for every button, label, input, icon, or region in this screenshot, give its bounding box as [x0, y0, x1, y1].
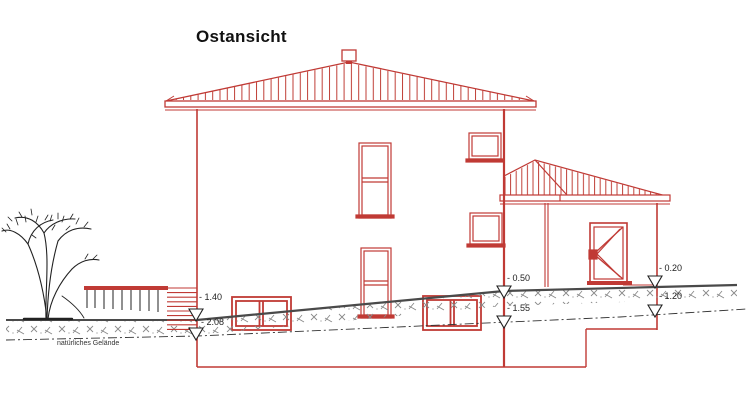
annex-roof-hatching	[505, 161, 665, 196]
window-middle-square	[467, 213, 505, 247]
level-label-annex-right-upper: - 0.20	[659, 263, 682, 273]
window-sill	[466, 159, 504, 162]
level-label-main-right-upper: - 0.50	[507, 273, 530, 283]
annex-door	[587, 223, 632, 285]
chimney	[342, 50, 356, 61]
door-hinge-mark	[589, 250, 597, 259]
door-threshold	[587, 281, 632, 285]
window-sill	[467, 244, 505, 247]
level-label-annex-right-lower: - 1.20	[659, 291, 682, 301]
elevation-sheet: Ostansicht - 1.40 - 2.08 - 0.50 - 1.55 -…	[0, 0, 750, 409]
main-roof-hatching	[170, 63, 530, 100]
level-label-main-left-lower: - 2.08	[201, 317, 224, 327]
tree	[2, 209, 99, 319]
drawing-title: Ostansicht	[196, 27, 287, 47]
terrace-handrail	[84, 286, 168, 290]
window-upper-tall	[356, 143, 394, 218]
terrace-railing-posts	[87, 290, 158, 312]
tree-foliage-ticks	[2, 209, 97, 259]
level-marker-triangle-1.20	[648, 305, 662, 317]
elevation-drawing	[0, 0, 750, 409]
level-label-main-left-upper: - 1.40	[199, 292, 222, 302]
main-roof	[165, 50, 536, 110]
main-roof-fascia	[165, 101, 536, 107]
annex-roof	[500, 160, 670, 204]
level-label-main-right-lower: - 1.55	[507, 303, 530, 313]
annex-roof-fascia	[500, 195, 670, 201]
window-upper-square	[466, 133, 504, 162]
natural-grade-label: natürliches Gelände	[57, 340, 119, 347]
window-sill	[356, 215, 394, 218]
